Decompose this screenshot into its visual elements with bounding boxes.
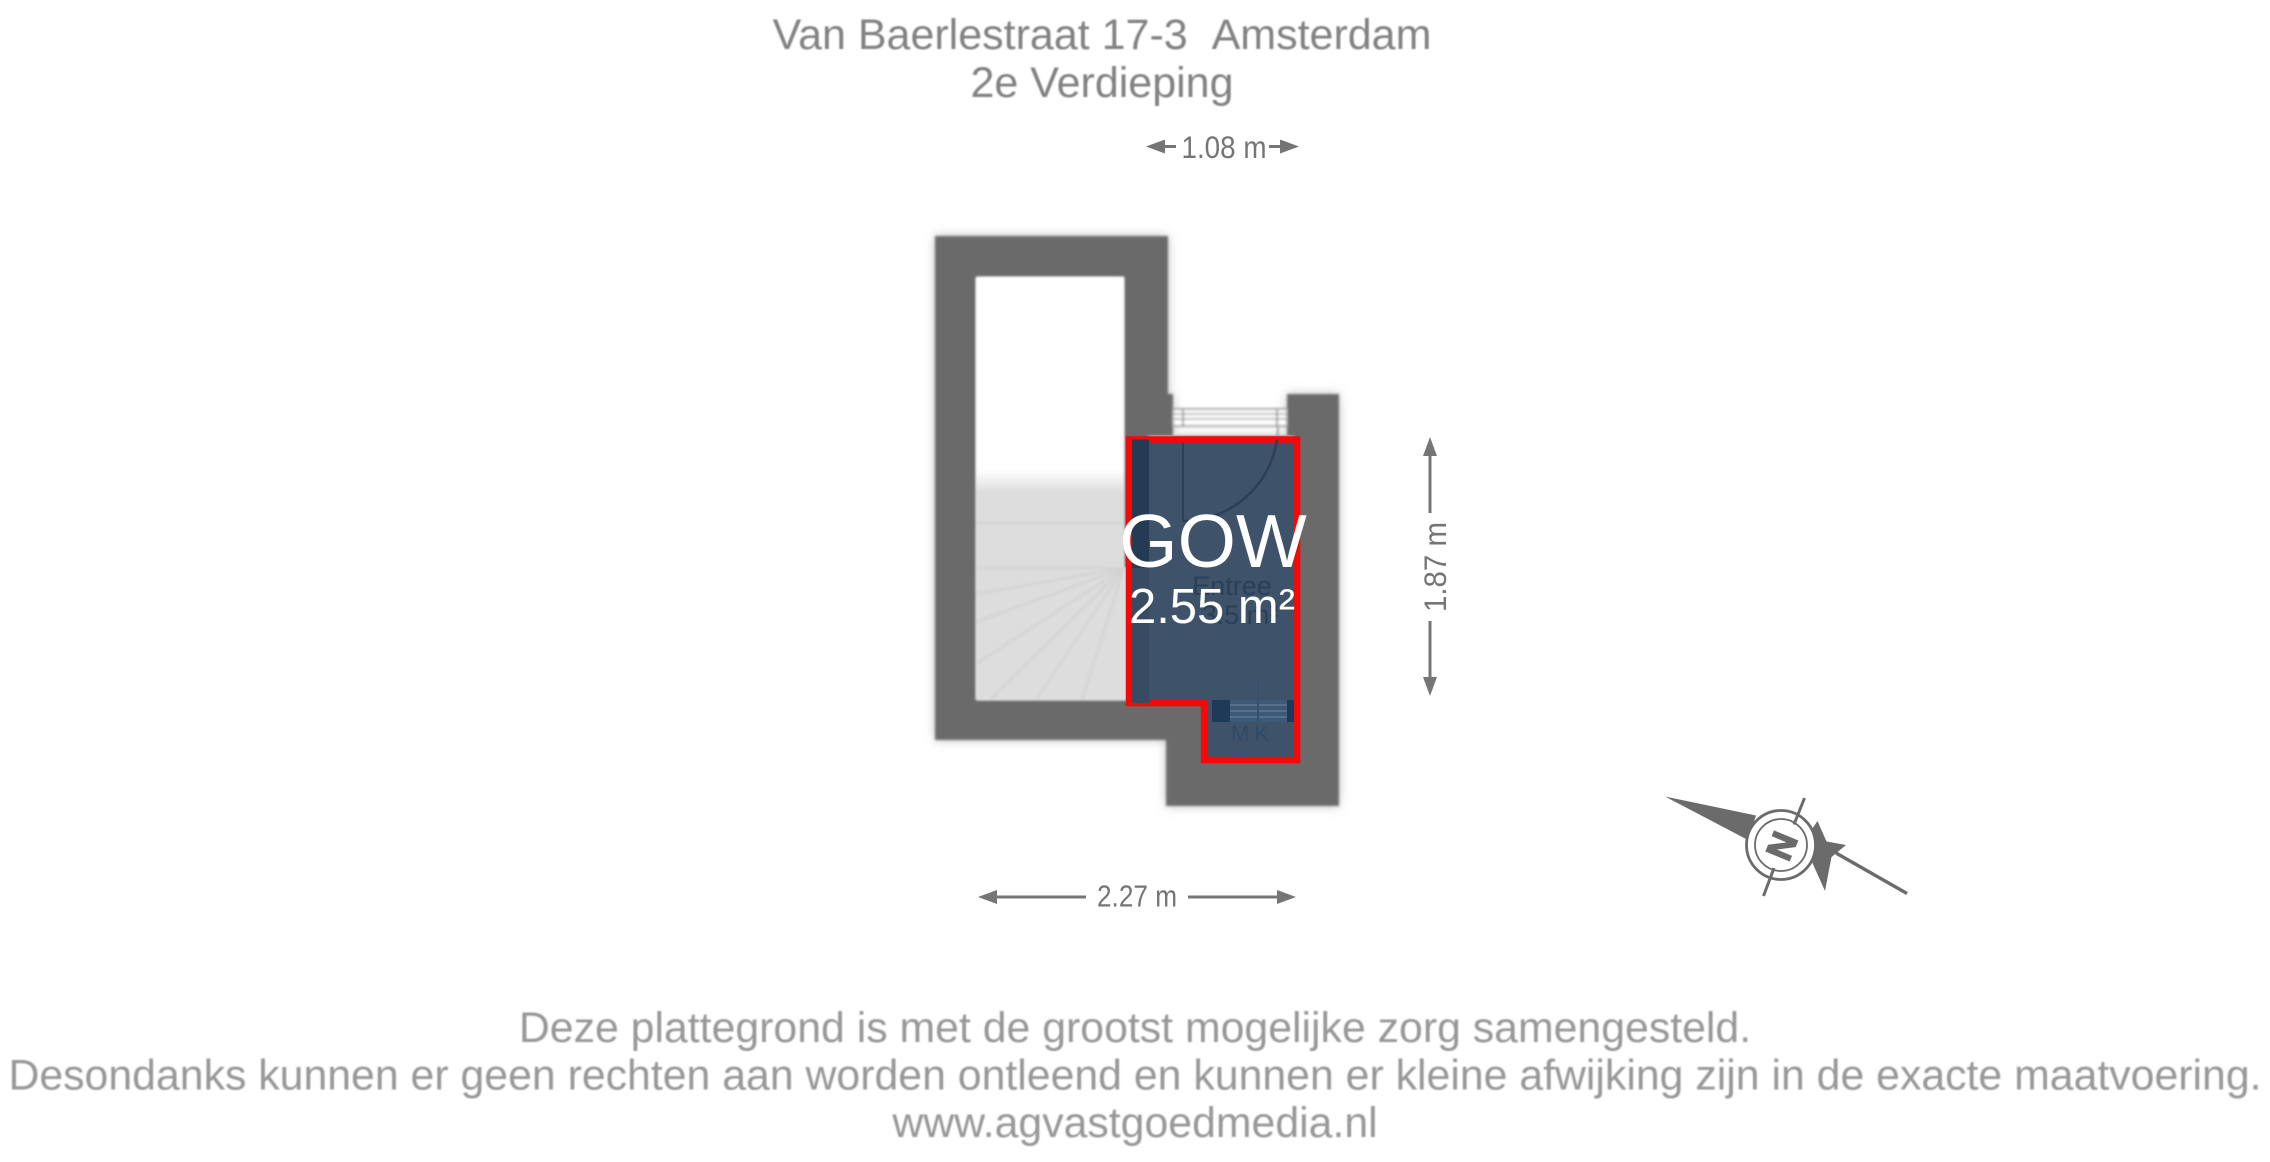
svg-text:1.08 m: 1.08 m bbox=[1182, 129, 1267, 165]
svg-text:GOW: GOW bbox=[1119, 499, 1307, 583]
svg-text:Deze plattegrond is met de gro: Deze plattegrond is met de grootst mogel… bbox=[519, 1004, 1751, 1052]
svg-text:2.55 m²: 2.55 m² bbox=[1129, 580, 1295, 634]
svg-text:2.27 m: 2.27 m bbox=[1097, 879, 1177, 914]
svg-text:Desondanks kunnen er geen rech: Desondanks kunnen er geen rechten aan wo… bbox=[8, 1052, 2261, 1100]
svg-text:www.agvastgoedmedia.nl: www.agvastgoedmedia.nl bbox=[891, 1099, 1377, 1147]
svg-text:1.1 m²: 1.1 m² bbox=[1234, 748, 1266, 760]
svg-text:1.87 m: 1.87 m bbox=[1417, 522, 1453, 612]
svg-text:Van Baerlestraat 17-3 Amsterd: Van Baerlestraat 17-3 Amsterdam bbox=[773, 11, 1432, 59]
svg-text:2e Verdieping: 2e Verdieping bbox=[971, 59, 1234, 107]
